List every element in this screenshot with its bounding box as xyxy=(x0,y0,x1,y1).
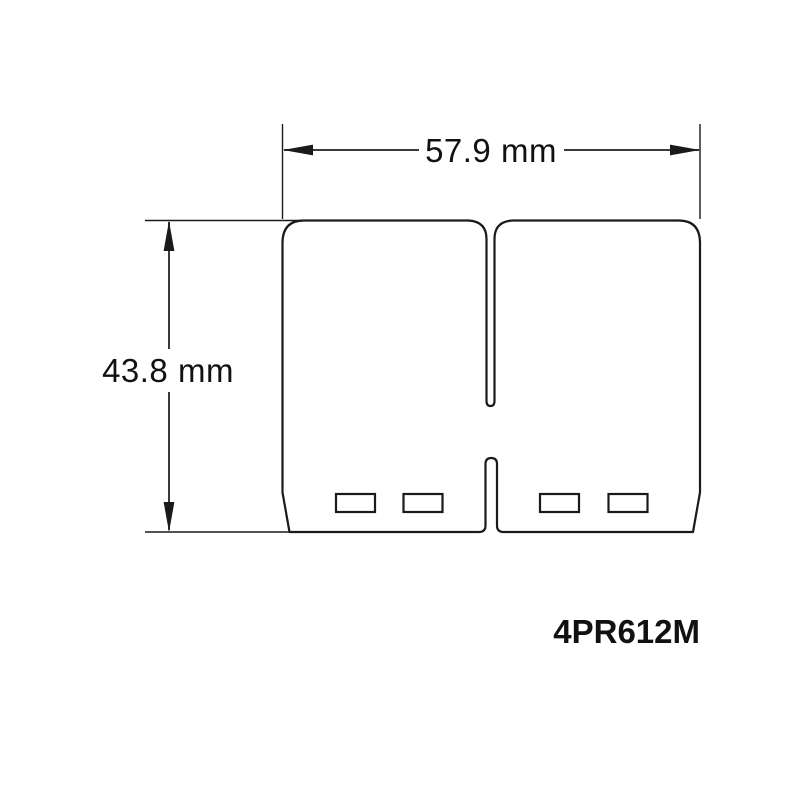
height-dimension: 43.8 mm xyxy=(102,221,234,532)
alignment-hole-3 xyxy=(540,494,579,512)
height-dimension-label: 43.8 mm xyxy=(102,352,234,389)
reed-petal-outline xyxy=(283,221,701,533)
reed-petal-dimension-drawing: 57.9 mm 43.8 mm 4PR612M xyxy=(0,0,800,800)
alignment-hole-2 xyxy=(404,494,443,512)
width-arrow-left-icon xyxy=(283,145,313,156)
alignment-hole-4 xyxy=(609,494,648,512)
width-arrow-right-icon xyxy=(670,145,700,156)
part-number-label: 4PR612M xyxy=(553,613,700,650)
technical-drawing-canvas: 57.9 mm 43.8 mm 4PR612M xyxy=(0,0,800,800)
width-dimension-label: 57.9 mm xyxy=(425,132,557,169)
height-arrow-up-icon xyxy=(164,221,175,251)
height-arrow-down-icon xyxy=(164,502,175,532)
width-dimension: 57.9 mm xyxy=(283,132,700,169)
alignment-hole-1 xyxy=(336,494,375,512)
